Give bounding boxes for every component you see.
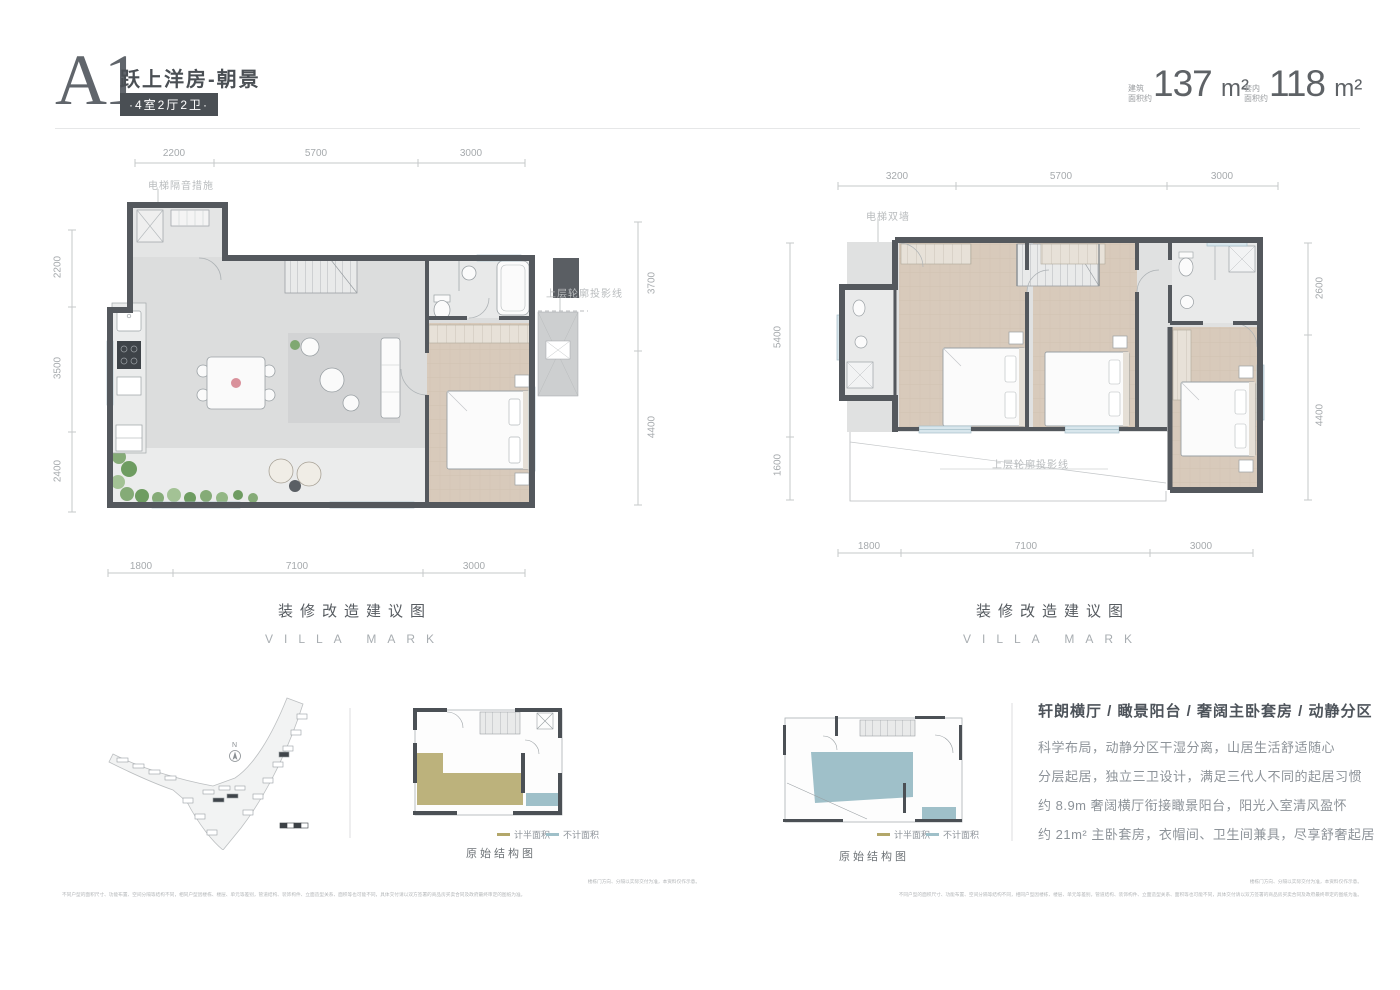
legend-swatch-half — [497, 833, 510, 836]
floorplan-right — [835, 230, 1285, 520]
description-line: 约 21m² 主卧套房，衣帽间、卫生间兼具，尽享舒奢起居 — [1038, 824, 1375, 843]
dim-label: 5700 — [1050, 171, 1072, 182]
dim-label: 5700 — [305, 148, 327, 159]
excluded-area-region — [526, 793, 558, 806]
site-boundary — [109, 698, 303, 850]
dim-label: 4400 — [647, 416, 658, 438]
legend-swatch-half — [877, 833, 890, 836]
legend-label-half: 计半面积 — [894, 828, 930, 841]
disclaimer: 楼栋门方向、分隔以实际交付为准，本资料仅作示意。 — [588, 878, 700, 885]
dim-label: 3000 — [460, 148, 482, 159]
dim-label: 3500 — [53, 357, 64, 379]
dim-label: 3200 — [886, 171, 908, 182]
floorplan-left — [95, 195, 585, 525]
stairs — [860, 720, 915, 736]
structure-caption: 原始结构图 — [839, 848, 909, 864]
plan-caption-en: VILLA MARK — [265, 632, 445, 646]
description-title: 轩朗横厅 / 瞰景阳台 / 奢阔主卧套房 / 动静分区 — [1038, 700, 1373, 721]
dim-label: 1600 — [773, 454, 784, 476]
dim-label: 1800 — [858, 541, 880, 552]
site-plan — [95, 690, 355, 850]
projection-note: 上层轮廓投影线 — [992, 456, 1069, 471]
disclaimer: 楼栋门方向、分隔以实际交付为准，本资料仅作示意。 — [1250, 878, 1362, 885]
plan-caption: 装修改造建议图 — [278, 600, 432, 621]
kitchen — [112, 303, 146, 453]
plan-caption: 装修改造建议图 — [976, 600, 1130, 621]
disclaimer: 不同户型的面积尺寸、功能布置、空间分隔等结构不同，相同户型因楼栋、楼层、单元等差… — [62, 891, 525, 898]
dining-set — [197, 357, 275, 409]
dim-label: 2200 — [53, 256, 64, 278]
description-line: 科学布局，动静分区干湿分离，山居生活舒适随心 — [1038, 737, 1335, 756]
dim-label: 3700 — [647, 272, 658, 294]
outdoor-units — [538, 258, 579, 396]
disclaimer: 不同户型的面积尺寸、功能布置、空间分隔等结构不同，相同户型因楼栋、楼层、单元等差… — [899, 891, 1362, 898]
scale-bar — [280, 823, 308, 828]
legend-label-none: 不计面积 — [943, 828, 979, 841]
legend-swatch-none — [546, 833, 559, 836]
structure-diagram-right — [775, 695, 995, 835]
dim-label: 2200 — [163, 148, 185, 159]
excluded-area-region — [811, 752, 913, 803]
dim-label: 4400 — [1315, 404, 1326, 426]
compass-icon — [230, 751, 241, 762]
dim-label: 3000 — [1211, 171, 1233, 182]
floorplan-brochure: A1 跃上洋房-朝景 ·4室2厅2卫· 建筑 面积约 137 m² 套内 面积约… — [0, 0, 1400, 990]
description-line: 分层起居，独立三卫设计，满足三代人不同的起居习惯 — [1038, 766, 1362, 785]
legend-label-none: 不计面积 — [563, 828, 599, 841]
dim-label: 2400 — [53, 460, 64, 482]
plan-caption-en: VILLA MARK — [963, 632, 1143, 646]
dim-label: 3000 — [463, 561, 485, 572]
description-line: 约 8.9m 奢阔横厅衔接瞰景阳台，阳光入室清风盈怀 — [1038, 795, 1347, 814]
structure-diagram-left — [395, 695, 615, 835]
elevator-note: 电梯双墙 — [866, 208, 910, 223]
dim-label: 7100 — [1015, 541, 1037, 552]
dim-label: 7100 — [286, 561, 308, 572]
projection-note: 上层轮廓投影线 — [546, 285, 623, 300]
north-label: N — [232, 742, 237, 749]
legend-swatch-none — [926, 833, 939, 836]
dim-label: 3000 — [1190, 541, 1212, 552]
dim-label: 1800 — [130, 561, 152, 572]
structure-caption: 原始结构图 — [466, 845, 536, 861]
excluded-area-region-2 — [922, 807, 956, 819]
legend-label-half: 计半面积 — [514, 828, 550, 841]
stairs — [480, 712, 520, 734]
dim-label: 2600 — [1315, 277, 1326, 299]
dim-label: 5400 — [773, 326, 784, 348]
stairs — [285, 260, 357, 293]
elevator-note: 电梯隔音措施 — [148, 177, 214, 192]
